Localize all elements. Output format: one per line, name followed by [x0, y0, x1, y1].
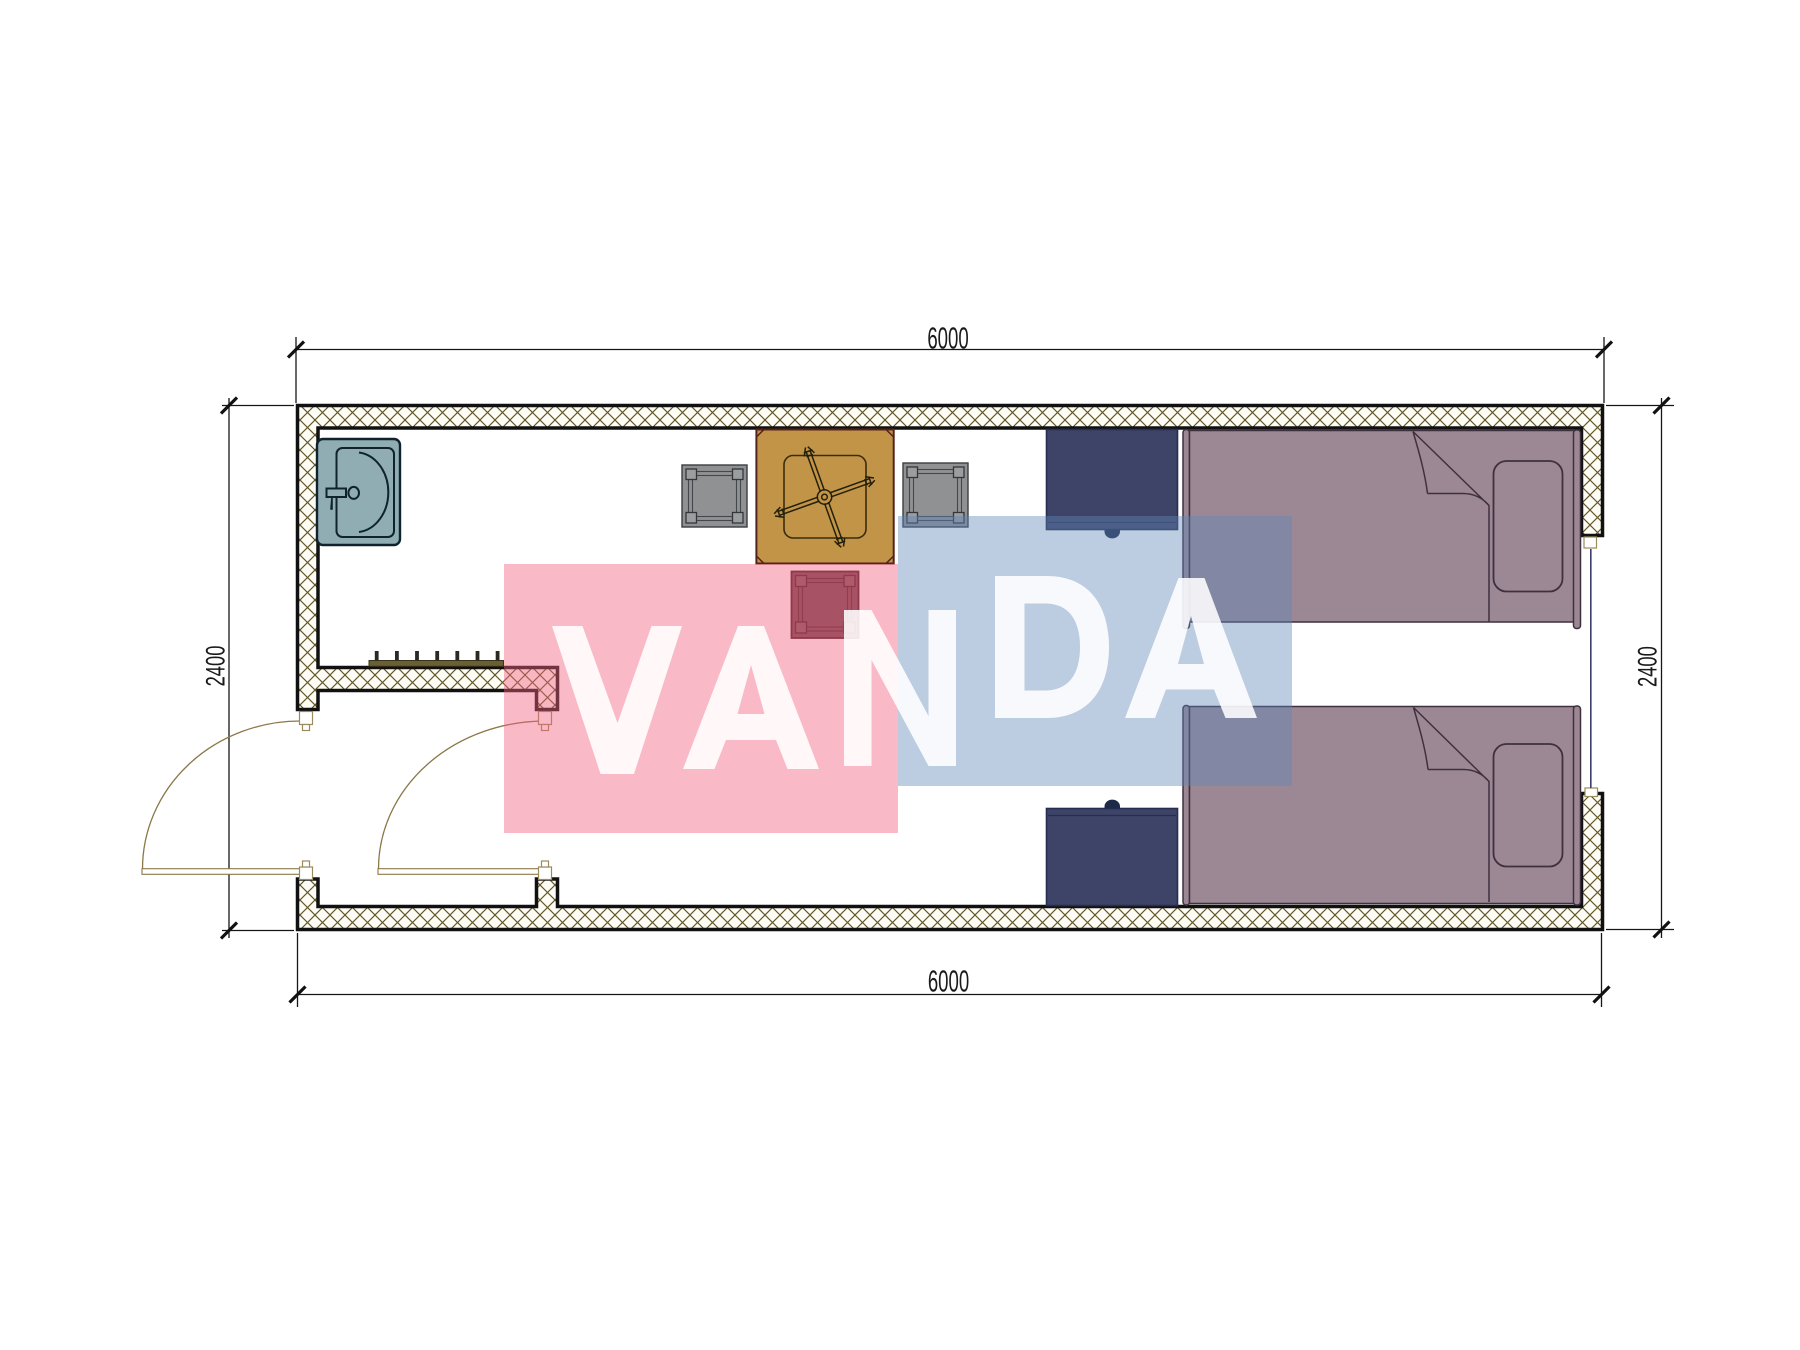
- svg-text:6000: 6000: [927, 322, 968, 356]
- svg-text:2400: 2400: [1632, 646, 1662, 687]
- svg-text:2400: 2400: [200, 646, 230, 687]
- svg-text:6000: 6000: [928, 965, 969, 999]
